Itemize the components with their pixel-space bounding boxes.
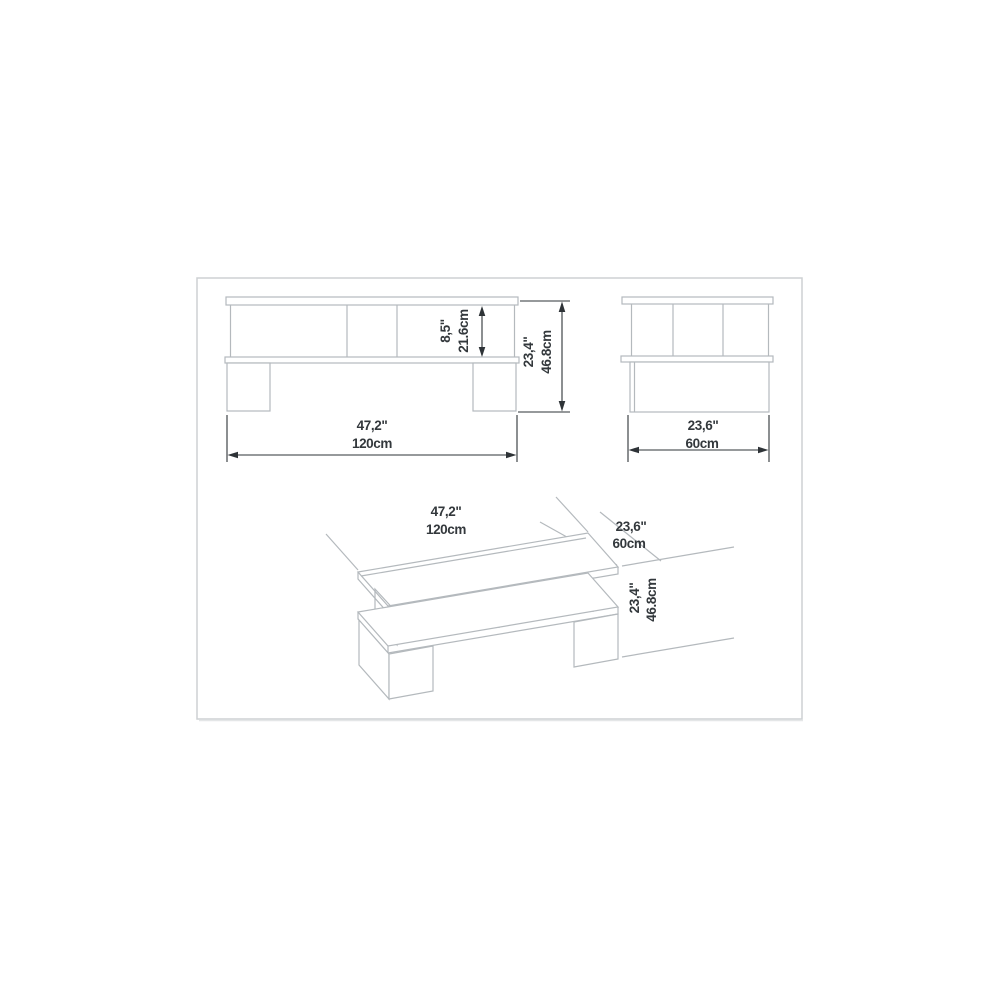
front-right-leg xyxy=(473,363,516,411)
arrow-right-icon xyxy=(506,452,517,459)
arrow-up-icon xyxy=(559,302,566,313)
front-total-height-dimension: 23,4" 46.8cm xyxy=(518,301,570,412)
isometric-view: 47,2" 120cm 23,6" 60cm 23,4" 46.8cm xyxy=(326,497,734,699)
iso-ext-width-left xyxy=(326,534,358,570)
front-view: 8,5" 21.6cm 23,4" 46.8cm 47,2" 120cm xyxy=(225,297,570,462)
front-inner-height-dimension: 8,5" 21.6cm xyxy=(438,306,485,357)
front-width-dimension: 47,2" 120cm xyxy=(227,415,517,462)
front-top-slab xyxy=(226,297,518,305)
front-width-label-cm: 120cm xyxy=(352,436,392,451)
arrow-left-icon xyxy=(629,447,640,454)
side-depth-label-cm: 60cm xyxy=(686,436,719,451)
arrow-down-icon xyxy=(479,347,486,357)
iso-left-leg-front xyxy=(389,646,433,699)
side-depth-dimension: 23,6" 60cm xyxy=(628,415,769,462)
front-width-label-in: 47,2" xyxy=(357,418,388,433)
front-inner-height-label-cm: 21.6cm xyxy=(456,309,471,353)
side-view: 23,6" 60cm xyxy=(621,297,773,462)
arrow-right-icon xyxy=(758,447,769,454)
iso-depth-label-in: 23,6" xyxy=(616,519,647,534)
side-top-slab xyxy=(622,297,773,304)
iso-right-leg-front xyxy=(574,614,618,667)
side-shelf xyxy=(621,356,773,362)
iso-width-label-cm: 120cm xyxy=(426,522,466,537)
front-left-leg xyxy=(227,363,270,411)
front-total-height-label-in: 23,4" xyxy=(521,337,536,368)
arrow-left-icon xyxy=(228,452,239,459)
front-shelf xyxy=(225,357,519,363)
drawing-frame xyxy=(197,278,802,719)
front-total-height-label-cm: 46.8cm xyxy=(539,330,554,374)
front-inner-height-label-in: 8,5" xyxy=(438,319,453,343)
iso-ext-height-bottom xyxy=(622,638,734,657)
iso-ext-width-right xyxy=(556,497,588,532)
arrow-up-icon xyxy=(479,306,486,316)
iso-height-label-cm: 46.8cm xyxy=(644,578,659,622)
iso-width-label-in: 47,2" xyxy=(431,504,462,519)
side-depth-label-in: 23,6" xyxy=(688,418,719,433)
product-dimension-image: 8,5" 21.6cm 23,4" 46.8cm 47,2" 120cm xyxy=(0,0,1000,1000)
side-leg-panel xyxy=(630,362,769,412)
arrow-down-icon xyxy=(559,401,566,412)
iso-height-label-in: 23,4" xyxy=(627,583,642,614)
dimension-drawing: 8,5" 21.6cm 23,4" 46.8cm 47,2" 120cm xyxy=(0,0,1000,1000)
iso-depth-label-cm: 60cm xyxy=(613,536,646,551)
